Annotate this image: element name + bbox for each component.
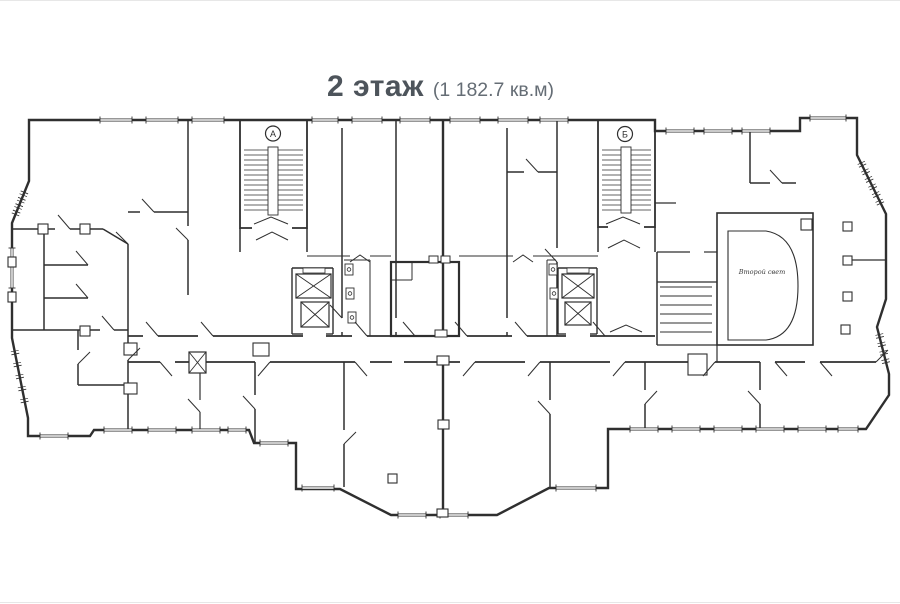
stairwell-b-label: Б bbox=[622, 130, 628, 140]
floor-plan-drawing: А Б Второй свет bbox=[0, 0, 900, 604]
building-outline bbox=[12, 118, 889, 515]
second-light-label: Второй свет bbox=[738, 268, 786, 276]
stairwell-a-label: А bbox=[270, 129, 276, 139]
